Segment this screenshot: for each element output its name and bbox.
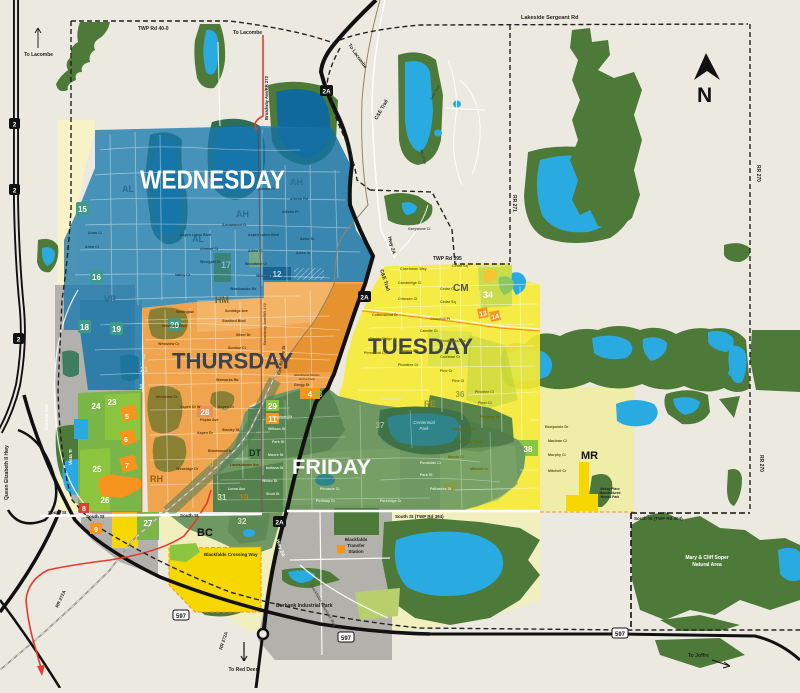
svg-text:VR: VR — [104, 294, 117, 304]
svg-text:597: 597 — [176, 614, 187, 620]
svg-text:AH: AH — [290, 177, 303, 187]
svg-text:Panorama Dr: Panorama Dr — [380, 397, 403, 401]
svg-text:Valley Cr: Valley Cr — [175, 273, 191, 277]
svg-text:Morris Cl: Morris Cl — [448, 455, 464, 459]
svg-text:2: 2 — [13, 188, 17, 195]
svg-text:Aztec St: Aztec St — [300, 237, 315, 241]
svg-text:Homes Park: Homes Park — [601, 495, 620, 499]
svg-text:16: 16 — [92, 273, 101, 282]
svg-text:BC: BC — [197, 527, 213, 539]
svg-text:2A: 2A — [275, 520, 284, 527]
svg-text:Sunridge Ave: Sunridge Ave — [225, 309, 248, 313]
svg-text:Plumtree Cr: Plumtree Cr — [398, 363, 419, 367]
svg-text:Womacks Rd: Womacks Rd — [216, 378, 239, 382]
svg-text:36: 36 — [456, 390, 465, 399]
svg-text:Westview Cr: Westview Cr — [158, 342, 180, 346]
svg-text:Landsdowne Ave: Landsdowne Ave — [230, 463, 259, 467]
svg-text:Aztec Cr: Aztec Cr — [296, 251, 311, 255]
svg-text:Mary & Cliff Soper: Mary & Cliff Soper — [685, 555, 728, 561]
svg-text:South St: South St — [180, 513, 199, 518]
svg-text:Blackfalds Crossing Way: Blackfalds Crossing Way — [204, 552, 258, 557]
svg-text:Arrowwood Cl: Arrowwood Cl — [222, 223, 246, 227]
svg-text:To Lacombe: To Lacombe — [24, 52, 53, 58]
svg-text:Lakeside Sergeant Rd: Lakeside Sergeant Rd — [521, 15, 578, 21]
svg-text:24: 24 — [92, 402, 101, 411]
svg-text:32: 32 — [238, 517, 247, 526]
svg-text:Mitchell Cr: Mitchell Cr — [548, 469, 567, 473]
svg-text:Stanley St: Stanley St — [222, 428, 240, 432]
svg-text:FRIDAY: FRIDAY — [292, 456, 371, 479]
svg-text:21: 21 — [140, 367, 148, 374]
svg-text:Centennial: Centennial — [413, 420, 436, 425]
svg-text:Camille Ct: Camille Ct — [420, 329, 438, 333]
svg-text:Pinetree Cl: Pinetree Cl — [475, 390, 494, 394]
svg-text:37: 37 — [376, 421, 385, 430]
svg-text:Gregg St: Gregg St — [294, 383, 310, 387]
svg-text:Wellington: Wellington — [176, 310, 194, 314]
svg-text:597: 597 — [341, 636, 352, 642]
svg-text:2: 2 — [142, 354, 146, 361]
svg-text:Duncan Ave: Duncan Ave — [44, 404, 49, 430]
svg-text:Anna Cl: Anna Cl — [88, 231, 102, 235]
svg-text:HM: HM — [215, 295, 229, 305]
svg-text:Cedar Sq: Cedar Sq — [440, 300, 456, 304]
svg-text:Westridge Dr: Westridge Dr — [176, 467, 199, 471]
svg-text:South St (TWP Rd 394): South St (TWP Rd 394) — [395, 514, 444, 519]
svg-text:Cedar Sq: Cedar Sq — [452, 264, 468, 268]
svg-text:Pine Cl: Pine Cl — [452, 379, 464, 383]
svg-text:Piper Cl: Piper Cl — [478, 401, 492, 405]
svg-text:Almond Cr: Almond Cr — [200, 247, 219, 251]
svg-text:28: 28 — [201, 408, 210, 417]
svg-text:South St: South St — [48, 510, 67, 515]
svg-text:4: 4 — [308, 390, 313, 399]
svg-text:Silver Dr: Silver Dr — [236, 333, 251, 337]
svg-text:Sunrise Cl: Sunrise Cl — [228, 346, 246, 350]
svg-text:Vista Tr: Vista Tr — [68, 449, 73, 465]
svg-text:Pine Cr: Pine Cr — [440, 369, 453, 373]
svg-text:Broadway Ave/RR 272: Broadway Ave/RR 272 — [264, 75, 269, 120]
svg-text:Cedar Cl: Cedar Cl — [440, 287, 455, 291]
svg-text:31: 31 — [218, 493, 227, 502]
svg-text:34: 34 — [483, 290, 493, 300]
svg-text:2: 2 — [17, 337, 21, 344]
svg-text:Pinnacle Cl: Pinnacle Cl — [320, 487, 339, 491]
svg-text:Greystone Ci: Greystone Ci — [408, 227, 430, 231]
svg-text:33: 33 — [314, 390, 323, 399]
svg-text:19: 19 — [112, 325, 121, 334]
svg-text:Moore St: Moore St — [268, 453, 284, 457]
svg-text:Westgate Cr: Westgate Cr — [200, 260, 222, 264]
svg-text:Aspen Lakes Blvd: Aspen Lakes Blvd — [180, 233, 211, 237]
svg-text:Cambridge Cl: Cambridge Cl — [398, 281, 421, 285]
svg-text:RR 271: RR 271 — [511, 195, 517, 212]
svg-text:Mitchell Cr: Mitchell Cr — [470, 467, 489, 471]
svg-text:Adina Cl: Adina Cl — [248, 249, 263, 253]
svg-text:THURSDAY: THURSDAY — [172, 349, 293, 374]
svg-text:Cyprus Rd: Cyprus Rd — [400, 349, 418, 353]
svg-text:To Red Deer: To Red Deer — [228, 667, 257, 673]
svg-text:TWP Rd 40-0: TWP Rd 40-0 — [138, 26, 169, 32]
svg-text:2: 2 — [13, 122, 17, 129]
svg-text:South St (TWP Rd 394): South St (TWP Rd 394) — [634, 516, 683, 521]
svg-text:38: 38 — [524, 445, 533, 454]
svg-text:Queen Elizabeth II Hwy: Queen Elizabeth II Hwy — [4, 445, 10, 500]
svg-text:Prairie Ridge Ar: Prairie Ridge Ar — [370, 337, 398, 341]
svg-text:Palisades St: Palisades St — [430, 487, 452, 491]
svg-text:15: 15 — [78, 205, 87, 214]
svg-text:Arlen Cl: Arlen Cl — [85, 245, 99, 249]
svg-text:RR 270: RR 270 — [758, 455, 764, 472]
svg-text:Blackfalds: Blackfalds — [345, 537, 368, 542]
svg-text:Aspen Cr: Aspen Cr — [218, 405, 235, 409]
svg-text:Portway Cr: Portway Cr — [316, 499, 336, 503]
svg-text:Westbrooke Rd: Westbrooke Rd — [230, 287, 256, 291]
svg-text:Park: Park — [419, 426, 429, 431]
svg-text:Waghorn St: Waghorn St — [272, 415, 293, 419]
svg-text:AH: AH — [236, 209, 249, 219]
svg-text:2A: 2A — [360, 295, 369, 302]
svg-text:Eastpointe Dr: Eastpointe Dr — [545, 425, 569, 429]
svg-text:N: N — [697, 84, 712, 107]
svg-text:Palmer Circle: Palmer Circle — [460, 440, 483, 444]
svg-text:Park St: Park St — [272, 440, 285, 444]
svg-text:Westview Cr: Westview Cr — [156, 395, 178, 399]
svg-text:2A: 2A — [322, 89, 331, 96]
svg-text:Natural Area: Natural Area — [692, 562, 722, 568]
svg-text:RR 270: RR 270 — [755, 165, 761, 182]
svg-text:Aspen Dr: Aspen Dr — [197, 431, 214, 435]
svg-text:Shull St: Shull St — [266, 492, 280, 496]
svg-text:Coachman Way: Coachman Way — [400, 267, 427, 271]
svg-text:Willson St: Willson St — [268, 427, 286, 431]
svg-text:DT: DT — [249, 448, 261, 458]
svg-text:26: 26 — [101, 496, 110, 505]
svg-text:30: 30 — [205, 460, 214, 469]
svg-text:Winston Pl: Winston Pl — [256, 274, 275, 278]
svg-text:Lorna Ave: Lorna Ave — [228, 487, 245, 491]
svg-text:18: 18 — [80, 323, 89, 332]
svg-text:Athens Pl: Athens Pl — [282, 210, 299, 214]
svg-text:To Joffre: To Joffre — [688, 653, 709, 659]
svg-text:Crimson Cl: Crimson Cl — [398, 297, 417, 301]
svg-text:RH: RH — [150, 474, 163, 484]
svg-text:To Lacombe: To Lacombe — [233, 30, 262, 36]
svg-text:Park St: Park St — [420, 473, 433, 477]
svg-text:5: 5 — [125, 414, 129, 421]
svg-text:Churchill Pl: Churchill Pl — [430, 317, 450, 321]
svg-text:Station: Station — [348, 549, 364, 554]
svg-text:MR: MR — [581, 450, 598, 462]
svg-text:17: 17 — [221, 260, 231, 270]
svg-text:Winko St: Winko St — [262, 479, 278, 483]
svg-text:Murphy Cl: Murphy Cl — [548, 453, 566, 457]
svg-text:6: 6 — [124, 437, 128, 444]
svg-text:Transfer: Transfer — [347, 543, 365, 548]
svg-text:South St: South St — [86, 514, 105, 519]
svg-text:Indiana St: Indiana St — [266, 466, 284, 470]
svg-text:TWP Rd 395: TWP Rd 395 — [433, 256, 462, 262]
svg-text:9: 9 — [94, 527, 98, 534]
svg-text:1: 1 — [139, 384, 143, 391]
svg-text:Coleman Cr: Coleman Cr — [440, 355, 461, 359]
svg-text:27: 27 — [144, 519, 153, 528]
svg-text:Athena Pl: Athena Pl — [258, 187, 275, 191]
svg-text:Maclean Cl: Maclean Cl — [548, 439, 567, 443]
svg-text:29: 29 — [268, 402, 277, 411]
svg-text:Brookwood Dr: Brookwood Dr — [208, 449, 233, 453]
svg-text:10: 10 — [240, 493, 249, 502]
svg-text:CM: CM — [453, 283, 469, 294]
svg-text:Woodbine Cl: Woodbine Cl — [245, 262, 267, 266]
svg-text:7: 7 — [125, 463, 129, 470]
svg-text:Parkridge Cr: Parkridge Cr — [380, 499, 402, 503]
svg-text:AL: AL — [122, 184, 134, 194]
svg-text:Home Park: Home Park — [299, 377, 315, 381]
svg-text:Aspen Lakes Blvd: Aspen Lakes Blvd — [248, 233, 279, 237]
svg-text:Broadway Ave/RR 272: Broadway Ave/RR 272 — [262, 302, 267, 345]
svg-text:23: 23 — [108, 398, 117, 407]
svg-text:Athena Rd: Athena Rd — [290, 197, 308, 201]
svg-text:Pinewood Cl: Pinewood Cl — [364, 351, 386, 355]
svg-text:Ponderosa Ave: Ponderosa Ave — [440, 339, 466, 343]
svg-text:Poplar Ave: Poplar Ave — [200, 418, 219, 422]
svg-text:PE: PE — [424, 399, 436, 409]
svg-text:Stanford Blvd: Stanford Blvd — [222, 319, 246, 323]
svg-text:25: 25 — [93, 465, 102, 474]
svg-text:Westglen Blvd: Westglen Blvd — [162, 324, 187, 328]
svg-text:8: 8 — [82, 506, 86, 513]
svg-text:Parkway Dr: Parkway Dr — [480, 415, 500, 419]
svg-text:Cottonwood Dr: Cottonwood Dr — [372, 313, 399, 317]
svg-text:Eastpointe Dr: Eastpointe Dr — [452, 427, 476, 431]
svg-text:Aspen Dr W: Aspen Dr W — [180, 405, 201, 409]
svg-text:Pondside Cr: Pondside Cr — [420, 461, 442, 465]
svg-text:597: 597 — [615, 632, 626, 638]
